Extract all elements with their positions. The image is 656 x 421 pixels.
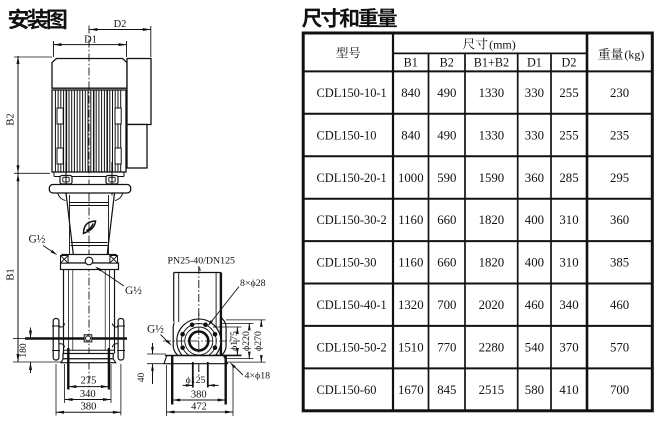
svg-text:330: 330 [525,128,544,142]
svg-text:1820: 1820 [479,213,505,227]
svg-text:D2: D2 [114,19,127,30]
svg-text:1670: 1670 [398,383,424,397]
svg-text:(kg): (kg) [624,48,644,62]
svg-text:B1: B1 [6,268,17,280]
svg-text:CDL150-60: CDL150-60 [317,383,377,397]
svg-text:660: 660 [437,256,456,270]
svg-text:840: 840 [401,86,420,100]
svg-text:CDL150-10: CDL150-10 [317,128,377,142]
svg-text:ϕ270: ϕ270 [253,331,264,351]
svg-text:580: 580 [525,383,544,397]
svg-text:CDL150-40-1: CDL150-40-1 [317,298,387,312]
svg-text:2020: 2020 [479,298,505,312]
svg-text:4×ϕ18: 4×ϕ18 [245,370,271,381]
svg-text:360: 360 [610,213,629,227]
svg-text:400: 400 [525,256,544,270]
svg-text:845: 845 [437,383,456,397]
svg-text:700: 700 [610,383,629,397]
svg-text:490: 490 [437,128,456,142]
svg-text:255: 255 [559,86,578,100]
svg-text:472: 472 [191,402,207,413]
svg-text:G½: G½ [29,234,46,246]
svg-text:460: 460 [610,298,629,312]
svg-text:540: 540 [525,341,544,355]
svg-text:G½: G½ [125,285,142,297]
svg-text:490: 490 [437,86,456,100]
svg-text:410: 410 [559,383,578,397]
svg-text:590: 590 [437,171,456,185]
svg-text:840: 840 [401,128,420,142]
svg-text:D1: D1 [527,56,542,70]
svg-text:2515: 2515 [479,383,505,397]
svg-text:230: 230 [610,86,629,100]
svg-text:295: 295 [610,171,629,185]
svg-text:B1+B2: B1+B2 [474,56,509,70]
svg-text:275: 275 [81,375,97,386]
svg-text:D2: D2 [562,56,577,70]
svg-text:380: 380 [81,402,97,413]
svg-text:40: 40 [137,373,147,383]
svg-text:360: 360 [525,171,544,185]
svg-text:1160: 1160 [398,256,423,270]
svg-text:370: 370 [559,341,578,355]
svg-text:CDL150-30: CDL150-30 [317,256,377,270]
svg-text:340: 340 [80,389,96,400]
svg-text:PN25-40/DN125: PN25-40/DN125 [168,256,236,267]
svg-text:1160: 1160 [398,213,423,227]
svg-text:2280: 2280 [479,341,505,355]
svg-text:D1: D1 [84,34,97,45]
svg-text:330: 330 [525,86,544,100]
svg-text:CDL150-30-2: CDL150-30-2 [317,213,387,227]
svg-text:B1: B1 [404,56,418,70]
svg-text:460: 460 [525,298,544,312]
svg-text:1000: 1000 [398,171,424,185]
svg-text:310: 310 [559,213,578,227]
svg-text:700: 700 [437,298,456,312]
svg-text:1820: 1820 [479,256,505,270]
svg-text:285: 285 [559,171,578,185]
svg-text:340: 340 [559,298,578,312]
svg-text:385: 385 [610,256,629,270]
svg-text:ϕ175: ϕ175 [229,331,240,351]
svg-text:660: 660 [437,213,456,227]
svg-text:B2: B2 [440,56,454,70]
svg-text:8×ϕ28: 8×ϕ28 [240,278,266,289]
svg-text:1330: 1330 [479,128,505,142]
svg-text:1330: 1330 [479,86,505,100]
svg-text:180: 180 [19,343,29,358]
svg-text:235: 235 [610,128,629,142]
svg-text:1590: 1590 [479,171,505,185]
svg-text:(mm): (mm) [489,37,516,51]
svg-text:310: 310 [559,256,578,270]
svg-text:ϕ125: ϕ125 [186,375,206,386]
svg-text:G½: G½ [147,324,164,336]
svg-text:CDL150-10-1: CDL150-10-1 [317,86,387,100]
svg-text:B2: B2 [6,113,17,125]
svg-text:770: 770 [437,341,456,355]
svg-text:400: 400 [525,213,544,227]
svg-text:255: 255 [559,128,578,142]
svg-text:ϕ220: ϕ220 [241,331,252,351]
svg-text:570: 570 [610,341,629,355]
svg-text:CDL150-50-2: CDL150-50-2 [317,341,387,355]
svg-text:380: 380 [191,389,207,400]
svg-text:CDL150-20-1: CDL150-20-1 [317,171,387,185]
svg-text:1510: 1510 [398,341,424,355]
svg-text:1320: 1320 [398,298,424,312]
